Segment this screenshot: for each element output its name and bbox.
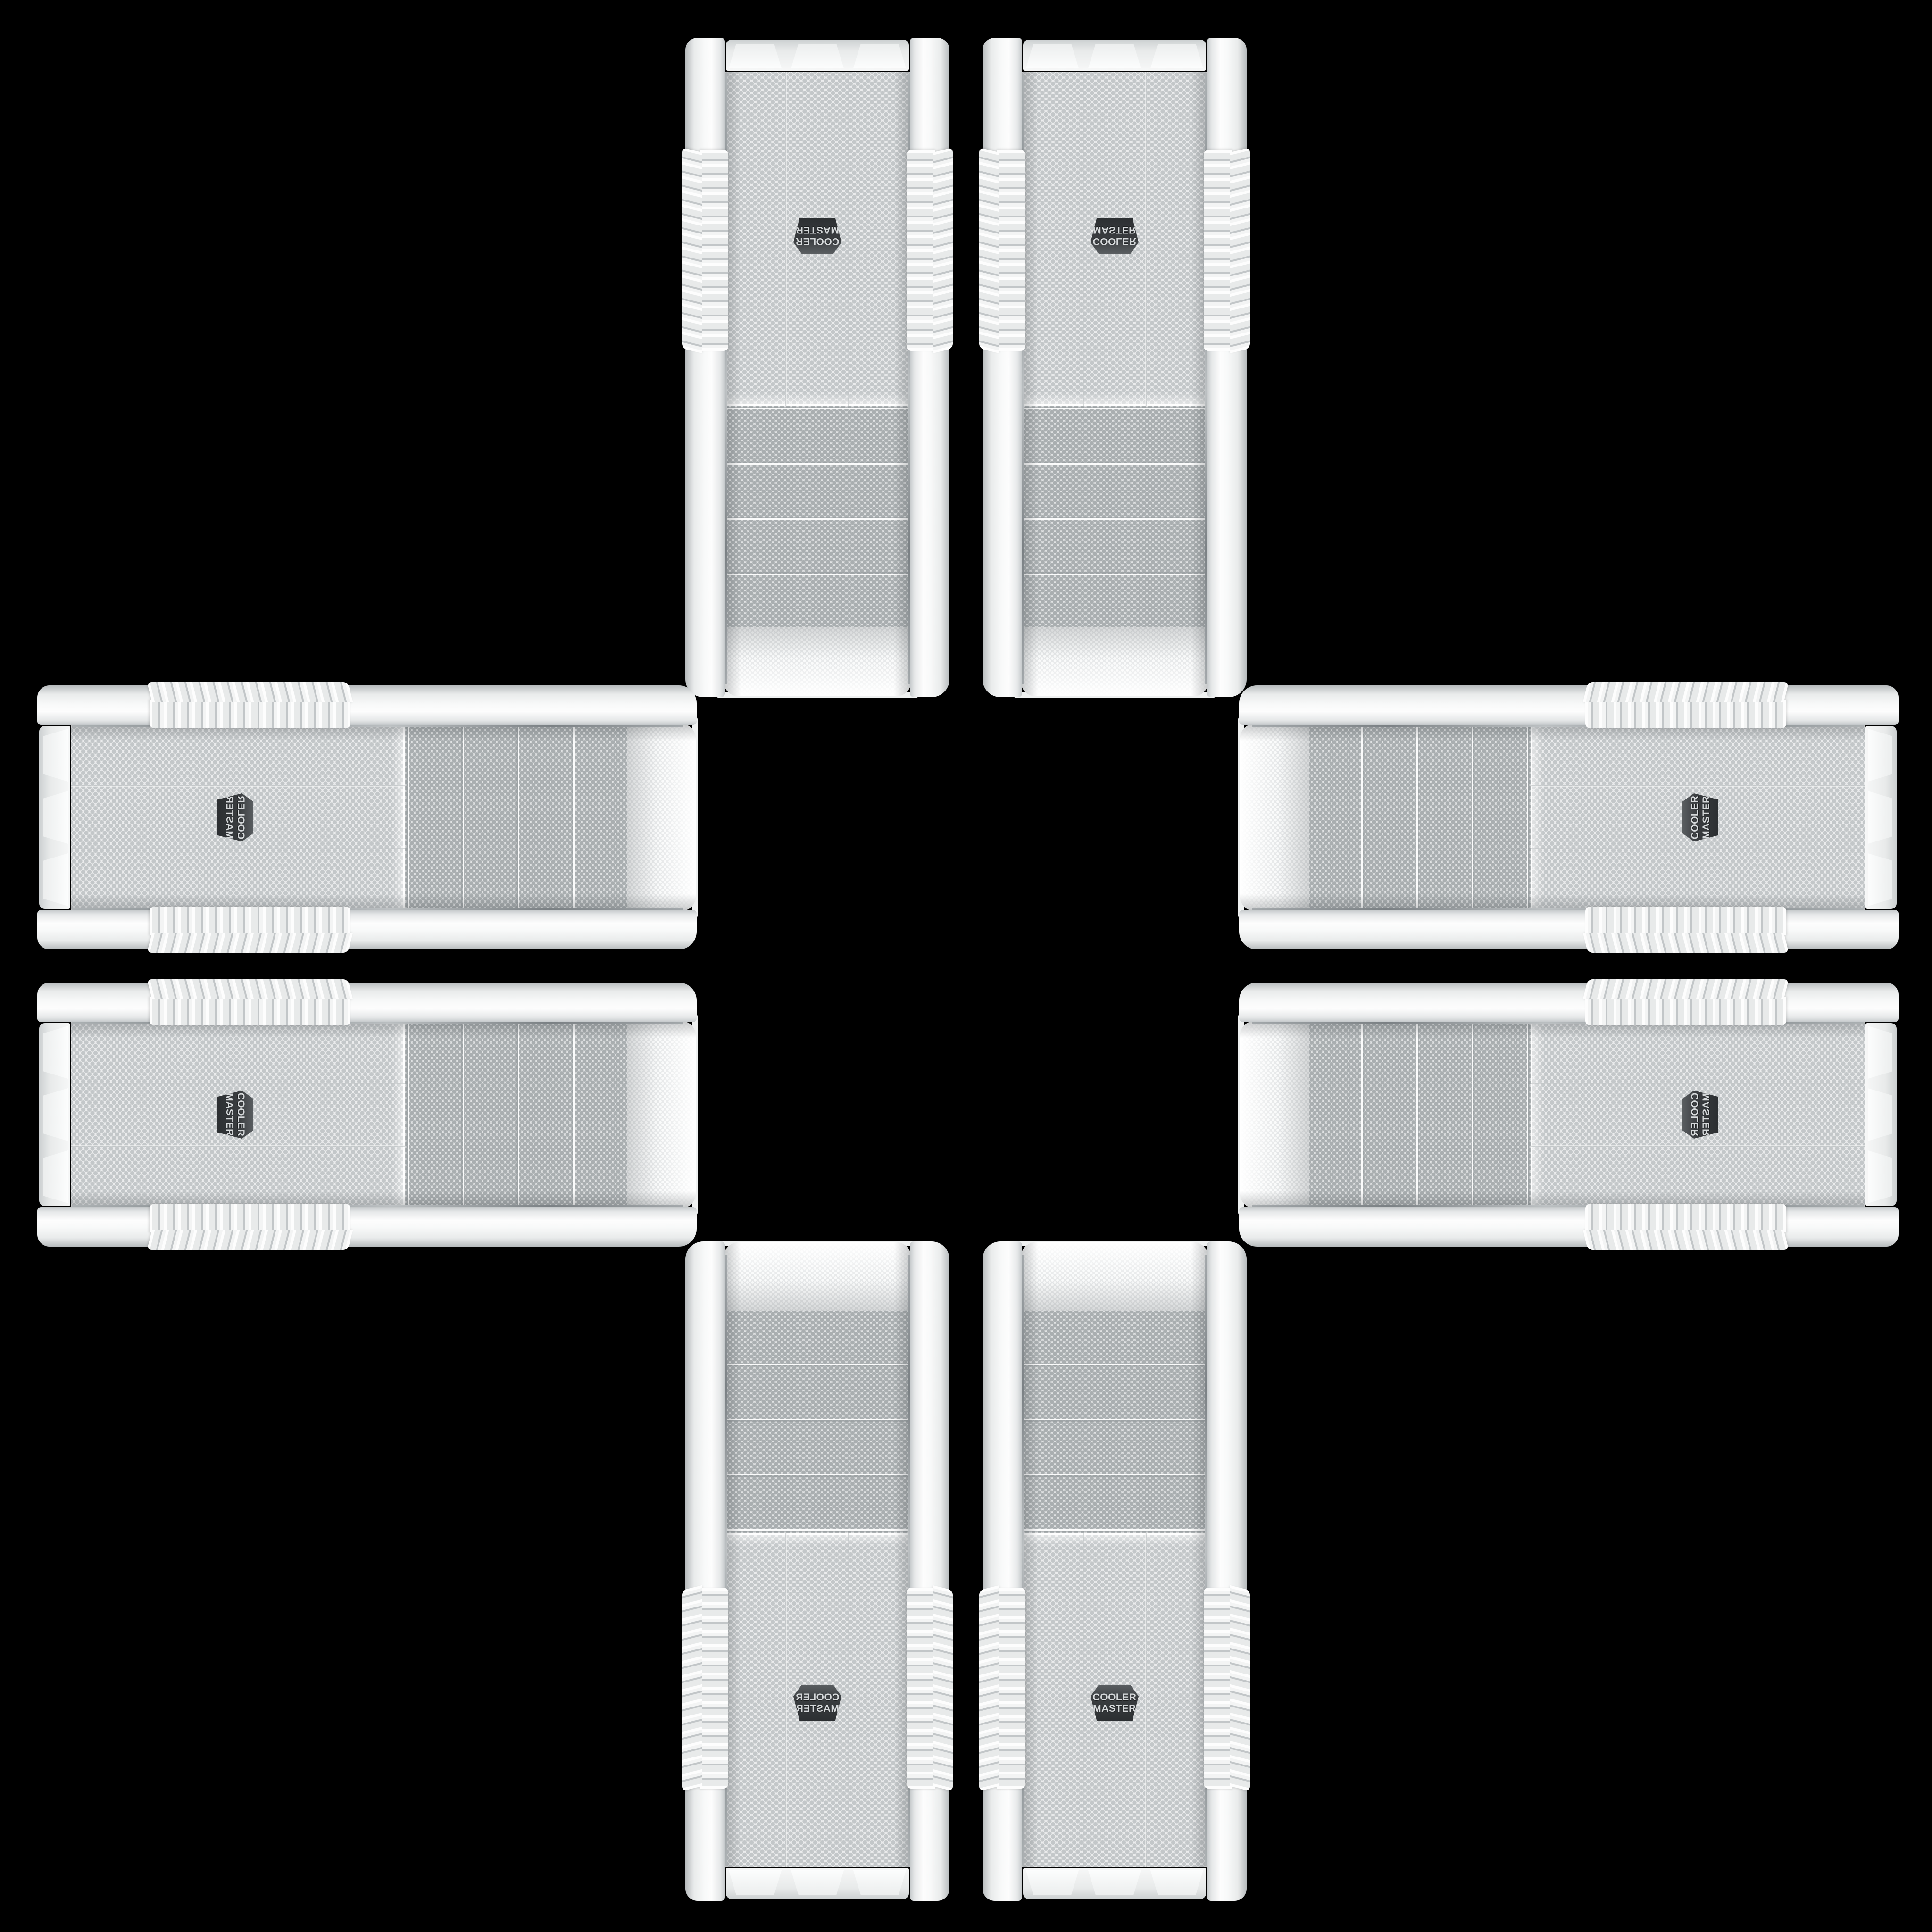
side-rail-right <box>1207 38 1247 697</box>
badge-text-line1: COOLER <box>1093 237 1137 247</box>
cooler-master-badge: COOLER MASTER <box>1682 1091 1718 1139</box>
cooler-master-badge: COOLER MASTER <box>1091 1685 1139 1721</box>
drive-bay-mesh-rows <box>1021 406 1208 627</box>
front-mesh-panel: COOLER MASTER <box>1240 724 1865 911</box>
drive-bay-mesh-rows <box>724 1311 911 1533</box>
rib-segment <box>1583 933 1789 953</box>
case-bottom-left: COOLER MASTER <box>685 1241 949 1901</box>
fan-mesh-area: COOLER MASTER <box>1531 724 1865 911</box>
rib-segment <box>1230 147 1250 353</box>
drive-bay-mesh-rows <box>405 1021 627 1208</box>
front-mesh-panel: COOLER MASTER <box>724 1242 911 1867</box>
base-step <box>729 44 782 68</box>
side-rail-right <box>37 1207 697 1247</box>
rib-segment <box>150 700 350 728</box>
rib-segment <box>1583 979 1789 999</box>
base-step <box>1088 44 1141 68</box>
rib-segment <box>933 147 953 353</box>
case-left-top: COOLER MASTER <box>37 685 698 949</box>
rib-segment <box>150 907 350 935</box>
rib-segment <box>700 1588 728 1789</box>
bottom-base <box>39 726 70 909</box>
badge-text-line1: COOLER <box>236 796 246 840</box>
cooler-master-badge: COOLER MASTER <box>793 1685 841 1721</box>
badge-text-line2: MASTER <box>796 1704 839 1714</box>
case-top-left: COOLER MASTER <box>685 38 949 698</box>
side-rail-left <box>1239 983 1899 1022</box>
base-step <box>1150 44 1203 68</box>
fan-mesh-area: COOLER MASTER <box>1021 72 1208 406</box>
base-step <box>43 791 68 844</box>
side-rail-right <box>685 1241 725 1901</box>
rib-segment <box>147 1230 353 1250</box>
rib-segment <box>147 682 353 702</box>
rib-segment <box>979 147 999 353</box>
base-step <box>1026 1870 1079 1895</box>
front-mesh-panel: COOLER MASTER <box>1021 72 1208 696</box>
side-rail-left <box>910 38 949 697</box>
base-step <box>853 1870 906 1895</box>
rail-grip-ribs <box>907 1588 953 1789</box>
cooler-master-badge: COOLER MASTER <box>217 793 253 841</box>
rail-grip-ribs <box>979 150 1025 351</box>
case-top-right: COOLER MASTER <box>983 38 1247 698</box>
rib-segment <box>1583 682 1789 702</box>
badge-text-line2: MASTER <box>1093 225 1136 235</box>
rib-segment <box>997 1588 1025 1789</box>
fan-mesh-area: COOLER MASTER <box>71 1021 405 1208</box>
mesh-top-curve <box>724 1242 911 1311</box>
mesh-top-curve <box>1240 1021 1309 1208</box>
front-mesh-panel: COOLER MASTER <box>1021 1242 1208 1867</box>
rib-segment <box>147 933 353 953</box>
case-bottom-right: COOLER MASTER <box>983 1241 1247 1901</box>
rail-grip-ribs <box>1585 907 1786 953</box>
bottom-base <box>1865 1023 1897 1206</box>
side-rail-right <box>1239 1207 1899 1247</box>
rail-grip-ribs <box>1585 682 1786 728</box>
rib-segment <box>150 997 350 1025</box>
rib-segment <box>150 1204 350 1232</box>
badge-text-line2: MASTER <box>225 1093 235 1136</box>
rib-segment <box>1585 907 1786 935</box>
cooler-master-badge: COOLER MASTER <box>217 1091 253 1139</box>
base-step <box>1868 729 1892 782</box>
cooler-master-badge: COOLER MASTER <box>1682 793 1718 841</box>
base-step <box>1868 791 1892 844</box>
base-step <box>43 1088 68 1141</box>
front-mesh-panel: COOLER MASTER <box>71 1021 696 1208</box>
badge-text-line1: COOLER <box>796 1692 840 1702</box>
drive-bay-mesh-rows <box>1309 1021 1531 1208</box>
base-step <box>1868 1088 1892 1141</box>
mesh-top-curve <box>1240 724 1309 911</box>
mesh-top-curve <box>1021 627 1208 696</box>
fan-mesh-area: COOLER MASTER <box>724 1533 911 1867</box>
rail-grip-ribs <box>1204 1588 1250 1789</box>
side-rail-right <box>37 685 697 725</box>
arm-bottom: COOLER MASTER <box>685 1241 1247 1901</box>
base-step <box>1026 44 1079 68</box>
rib-segment <box>1583 1230 1789 1250</box>
side-rail-left <box>1239 910 1899 949</box>
rib-segment <box>147 979 353 999</box>
arm-left: COOLER MASTER <box>37 685 698 1247</box>
rib-segment <box>1585 1204 1786 1232</box>
mesh-top-curve <box>724 627 911 696</box>
base-step <box>43 729 68 782</box>
base-step <box>853 44 906 68</box>
rail-grip-ribs <box>1585 1204 1786 1250</box>
drive-bay-mesh-rows <box>1021 1311 1208 1533</box>
drive-bay-mesh-rows <box>724 406 911 627</box>
rib-segment <box>1230 1585 1250 1791</box>
bottom-base <box>1023 1868 1206 1899</box>
rail-grip-ribs <box>682 1588 728 1789</box>
base-step <box>1868 1026 1892 1079</box>
side-rail-left <box>983 1241 1022 1901</box>
base-step <box>1868 1150 1892 1203</box>
cooler-master-badge: COOLER MASTER <box>793 218 841 254</box>
fan-mesh-area: COOLER MASTER <box>724 72 911 406</box>
rail-grip-ribs <box>150 979 350 1025</box>
side-rail-left <box>37 910 697 949</box>
front-mesh-panel: COOLER MASTER <box>71 724 696 911</box>
rib-segment <box>1204 150 1232 351</box>
mesh-top-curve <box>627 724 696 911</box>
rib-segment <box>907 150 935 351</box>
rail-grip-ribs <box>150 1204 350 1250</box>
bottom-base <box>1023 40 1206 71</box>
drive-bay-mesh-rows <box>405 724 627 911</box>
rib-segment <box>933 1585 953 1791</box>
badge-text-line2: MASTER <box>1701 796 1711 839</box>
side-rail-right <box>1239 685 1899 725</box>
rail-grip-ribs <box>1204 150 1250 351</box>
base-step <box>791 1870 844 1895</box>
case-right-top: COOLER MASTER <box>1238 685 1899 949</box>
arm-top: COOLER MASTER <box>685 38 1247 698</box>
badge-text-line1: COOLER <box>1690 796 1700 840</box>
badge-text-line1: COOLER <box>236 1093 246 1137</box>
rib-segment <box>700 150 728 351</box>
side-rail-right <box>685 38 725 697</box>
rail-grip-ribs <box>1585 979 1786 1025</box>
bottom-base <box>1865 726 1897 909</box>
mesh-top-curve <box>627 1021 696 1208</box>
badge-text-line2: MASTER <box>225 796 235 839</box>
rib-segment <box>682 1585 702 1791</box>
badge-text-line2: MASTER <box>1093 1704 1136 1714</box>
fan-mesh-area: COOLER MASTER <box>1531 1021 1865 1208</box>
side-rail-left <box>910 1241 949 1901</box>
badge-text-line2: MASTER <box>796 225 839 235</box>
badge-text-line1: COOLER <box>1093 1692 1137 1702</box>
rib-segment <box>1204 1588 1232 1789</box>
badge-text-line1: COOLER <box>796 237 840 247</box>
base-step <box>1868 853 1892 906</box>
rail-grip-ribs <box>150 682 350 728</box>
side-rail-right <box>1207 1241 1247 1901</box>
base-step <box>43 1026 68 1079</box>
fan-mesh-area: COOLER MASTER <box>71 724 405 911</box>
rib-segment <box>1585 997 1786 1025</box>
rib-segment <box>907 1588 935 1789</box>
rib-segment <box>979 1585 999 1791</box>
base-step <box>729 1870 782 1895</box>
side-rail-left <box>983 38 1022 697</box>
base-step <box>43 853 68 906</box>
mesh-top-curve <box>1021 1242 1208 1311</box>
bottom-base <box>726 40 909 71</box>
front-mesh-panel: COOLER MASTER <box>724 72 911 696</box>
cooler-master-badge: COOLER MASTER <box>1091 218 1139 254</box>
rib-segment <box>997 150 1025 351</box>
rail-grip-ribs <box>907 150 953 351</box>
base-step <box>1088 1870 1141 1895</box>
rib-segment <box>1585 700 1786 728</box>
case-right-bottom: COOLER MASTER <box>1238 983 1899 1247</box>
badge-text-line1: COOLER <box>1690 1093 1700 1137</box>
fan-mesh-area: COOLER MASTER <box>1021 1533 1208 1867</box>
base-step <box>791 44 844 68</box>
rail-grip-ribs <box>979 1588 1025 1789</box>
case-left-bottom: COOLER MASTER <box>37 983 698 1247</box>
base-step <box>1150 1870 1203 1895</box>
arm-right: COOLER MASTER <box>1238 685 1899 1247</box>
collage-canvas: COOLER MASTER <box>0 0 1932 1932</box>
front-mesh-panel: COOLER MASTER <box>1240 1021 1865 1208</box>
bottom-base <box>39 1023 70 1206</box>
rib-segment <box>682 147 702 353</box>
rail-grip-ribs <box>150 907 350 953</box>
base-step <box>43 1150 68 1203</box>
drive-bay-mesh-rows <box>1309 724 1531 911</box>
badge-text-line2: MASTER <box>1701 1093 1711 1136</box>
bottom-base <box>726 1868 909 1899</box>
side-rail-left <box>37 983 697 1022</box>
rail-grip-ribs <box>682 150 728 351</box>
